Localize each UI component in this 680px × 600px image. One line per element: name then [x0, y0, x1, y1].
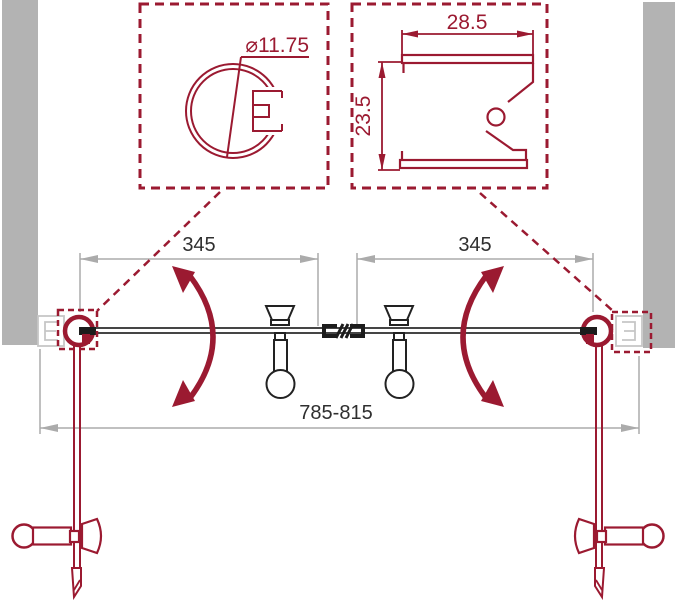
center-connector: [322, 324, 365, 338]
right-knob-top: [385, 306, 414, 398]
technical-diagram: ⌀11.75 28.5 23.5 345 345 785-815: [0, 0, 680, 600]
detail-height-label: 23.5: [352, 96, 375, 137]
detail-width-label: 28.5: [447, 11, 488, 34]
swing-arrow-left: [172, 266, 213, 407]
detail-diameter-label: ⌀11.75: [245, 34, 309, 57]
left-knob-top: [266, 306, 295, 398]
dim-label-345-right: 345: [458, 234, 491, 256]
right-pivot: [580, 317, 611, 345]
left-door-tip: [72, 568, 81, 597]
detail-box-round-profile: [140, 4, 328, 188]
swing-arrow-right: [463, 266, 504, 407]
diagram-svg: ⌀11.75 28.5 23.5 345 345 785-815: [0, 0, 680, 600]
dim-label-345-left: 345: [182, 234, 215, 256]
right-wall: [643, 2, 675, 348]
left-pivot: [65, 317, 96, 345]
left-wall-profile-small: [38, 316, 64, 346]
right-door-handle: [575, 519, 664, 553]
right-wall-profile-small: [616, 316, 642, 346]
right-door-tip: [595, 568, 604, 597]
left-wall: [2, 0, 38, 345]
left-door-handle: [13, 519, 102, 553]
dim-label-overall-width: 785-815: [299, 402, 372, 424]
